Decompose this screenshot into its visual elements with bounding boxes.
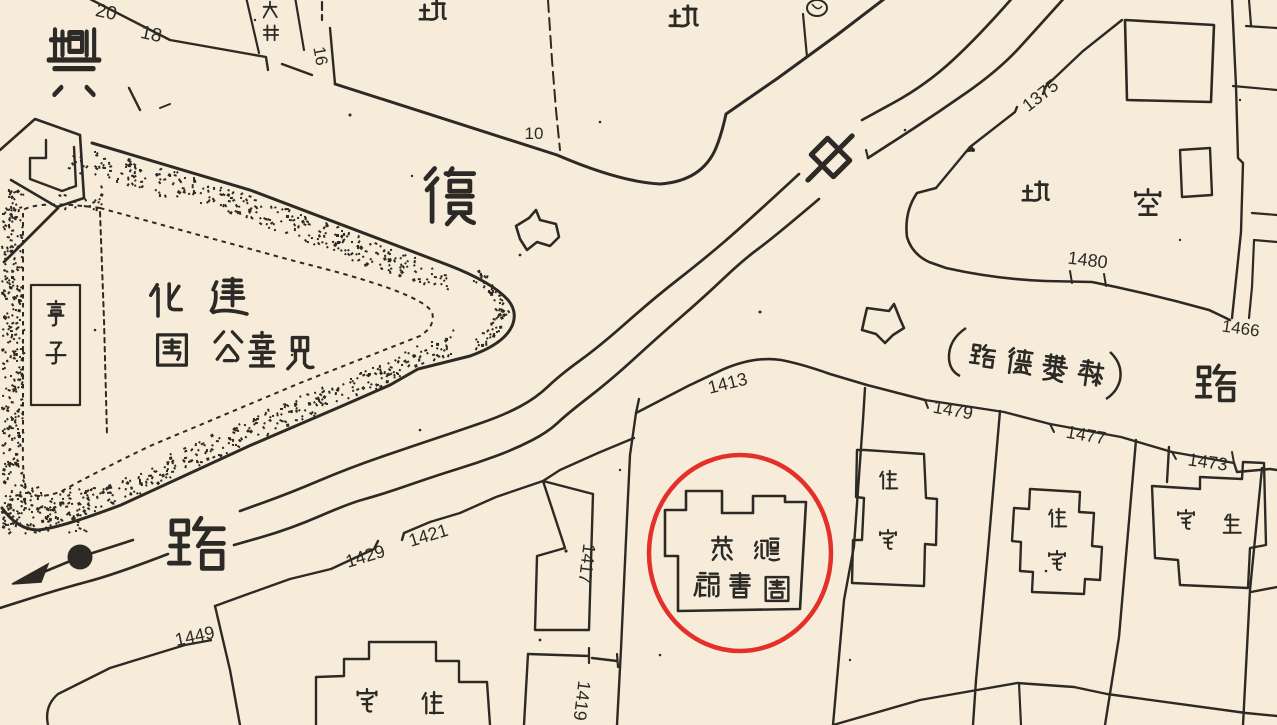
svg-text:20: 20 [94,0,119,25]
svg-text:16: 16 [309,45,331,67]
svg-text:18: 18 [139,22,164,47]
svg-text:10: 10 [525,124,544,143]
